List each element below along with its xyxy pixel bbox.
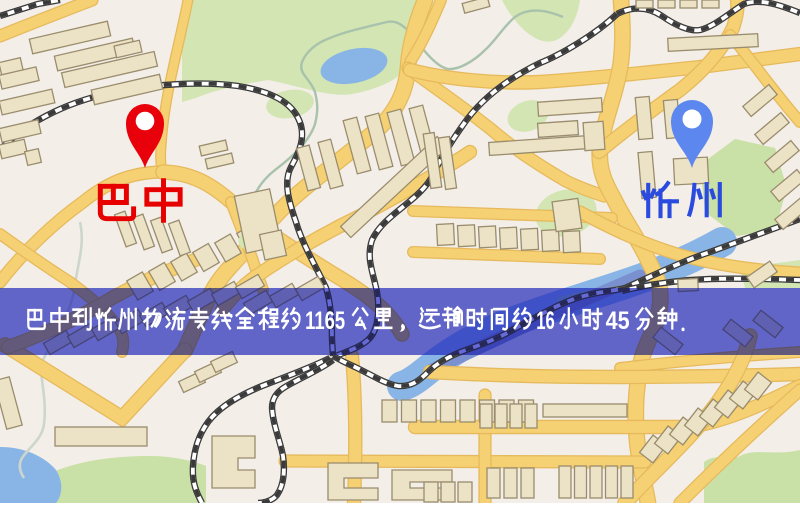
svg-text:45: 45: [606, 307, 630, 335]
svg-text:16: 16: [536, 307, 555, 335]
svg-text:1165: 1165: [305, 307, 345, 335]
